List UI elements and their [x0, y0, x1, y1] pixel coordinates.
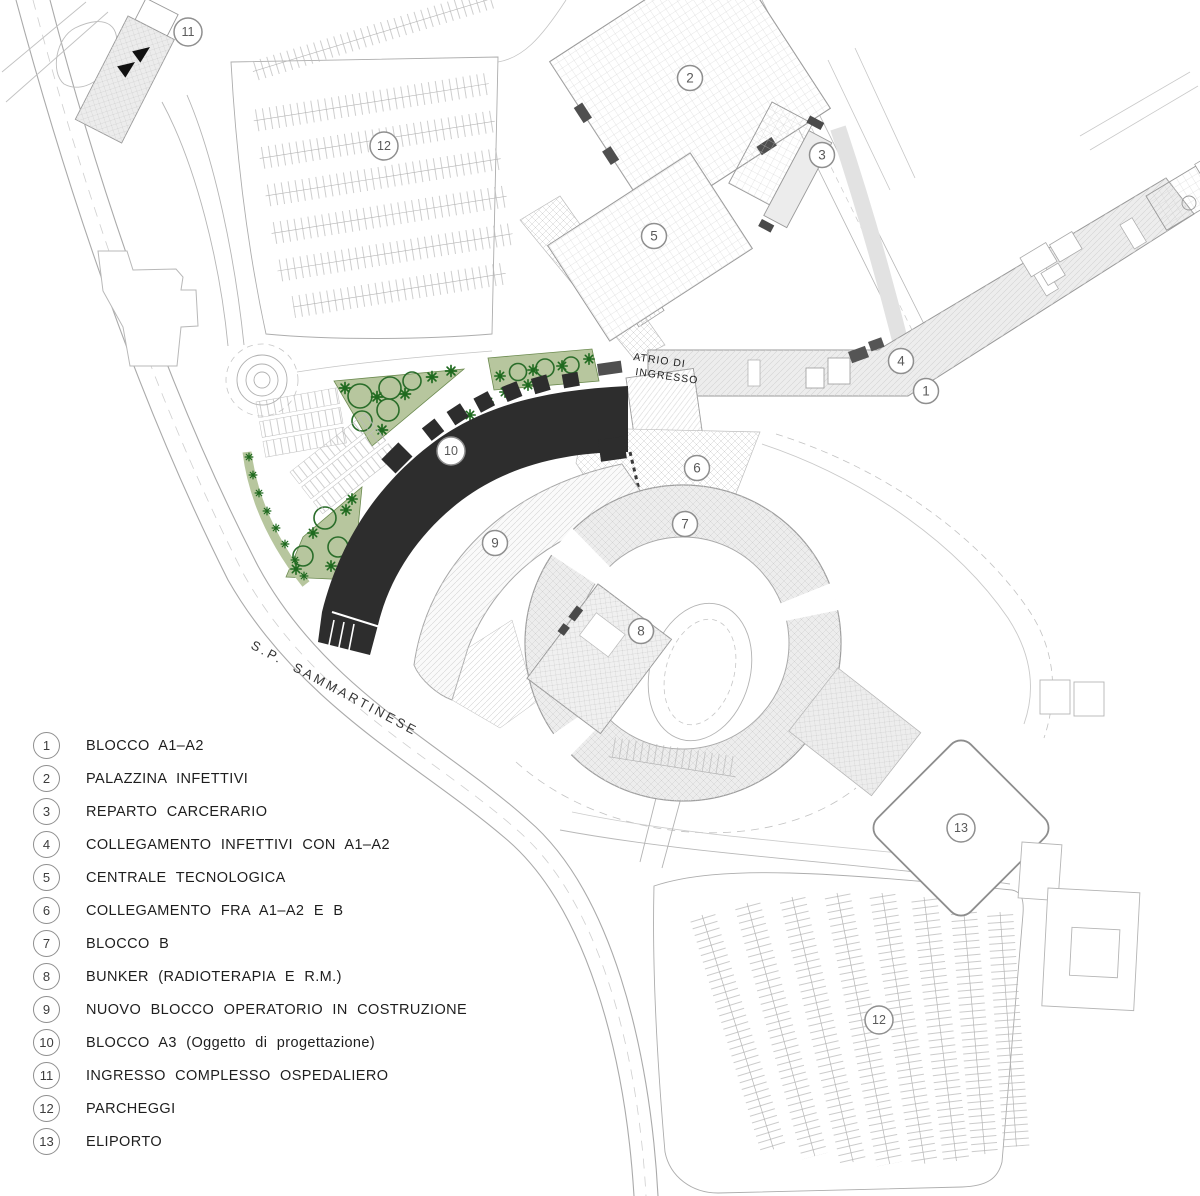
legend-item-12: 12PARCHEGGI — [33, 1092, 483, 1125]
svg-text:4: 4 — [897, 354, 905, 369]
map-marker-1: 1 — [914, 379, 939, 404]
legend-number: 3 — [33, 798, 60, 825]
legend-item-7: 7BLOCCO B — [33, 927, 483, 960]
map-marker-11: 11 — [174, 18, 202, 46]
legend-label: COLLEGAMENTO FRA A1–A2 E B — [86, 903, 343, 919]
legend-label: BLOCCO A3 (Oggetto di progettazione) — [86, 1035, 375, 1051]
map-marker-12: 12 — [370, 132, 398, 160]
svg-text:2: 2 — [686, 71, 694, 86]
map-marker-12: 12 — [865, 1006, 893, 1034]
svg-text:5: 5 — [650, 229, 658, 244]
legend-item-9: 9NUOVO BLOCCO OPERATORIO IN COSTRUZIONE — [33, 993, 483, 1026]
legend-number: 7 — [33, 930, 60, 957]
map-marker-2: 2 — [678, 66, 703, 91]
legend-label: BLOCCO A1–A2 — [86, 738, 204, 754]
map-marker-8: 8 — [629, 619, 654, 644]
legend-label: COLLEGAMENTO INFETTIVI CON A1–A2 — [86, 837, 390, 853]
legend-label: PARCHEGGI — [86, 1101, 176, 1117]
map-marker-5: 5 — [642, 224, 667, 249]
legend: 1BLOCCO A1–A22PALAZZINA INFETTIVI3REPART… — [33, 729, 483, 1158]
legend-item-5: 5CENTRALE TECNOLOGICA — [33, 861, 483, 894]
entrance-ramp — [75, 0, 185, 143]
legend-item-3: 3REPARTO CARCERARIO — [33, 795, 483, 828]
legend-label: CENTRALE TECNOLOGICA — [86, 870, 286, 886]
legend-number: 9 — [33, 996, 60, 1023]
svg-text:1: 1 — [922, 384, 930, 399]
legend-number: 8 — [33, 963, 60, 990]
svg-text:12: 12 — [377, 139, 391, 153]
map-marker-6: 6 — [685, 456, 710, 481]
svg-text:12: 12 — [872, 1013, 886, 1027]
svg-text:7: 7 — [681, 517, 689, 532]
svg-text:13: 13 — [954, 821, 968, 835]
map-marker-3: 3 — [810, 143, 835, 168]
map-marker-9: 9 — [483, 531, 508, 556]
legend-item-11: 11INGRESSO COMPLESSO OSPEDALIERO — [33, 1059, 483, 1092]
map-marker-4: 4 — [889, 349, 914, 374]
legend-number: 6 — [33, 897, 60, 924]
legend-number: 5 — [33, 864, 60, 891]
map-marker-7: 7 — [673, 512, 698, 537]
building-left-outline — [98, 251, 198, 366]
svg-text:3: 3 — [818, 148, 826, 163]
legend-number: 12 — [33, 1095, 60, 1122]
legend-item-13: 13ELIPORTO — [33, 1125, 483, 1158]
legend-label: INGRESSO COMPLESSO OSPEDALIERO — [86, 1068, 388, 1084]
svg-text:8: 8 — [637, 624, 645, 639]
buildings-right — [1018, 680, 1140, 1011]
legend-label: ELIPORTO — [86, 1134, 162, 1150]
legend-number: 10 — [33, 1029, 60, 1056]
parking-north — [231, 0, 520, 339]
legend-item-1: 1BLOCCO A1–A2 — [33, 729, 483, 762]
svg-text:9: 9 — [491, 536, 499, 551]
parking-south — [654, 873, 1030, 1193]
legend-label: BUNKER (RADIOTERAPIA E R.M.) — [86, 969, 342, 985]
svg-text:10: 10 — [444, 444, 458, 458]
legend-label: PALAZZINA INFETTIVI — [86, 771, 248, 787]
legend-item-2: 2PALAZZINA INFETTIVI — [33, 762, 483, 795]
site-plan-page: ATRIO DI INGRESSO S.P. SAMMARTINESE 1234… — [0, 0, 1200, 1196]
legend-number: 4 — [33, 831, 60, 858]
legend-label: NUOVO BLOCCO OPERATORIO IN COSTRUZIONE — [86, 1002, 467, 1018]
legend-item-8: 8BUNKER (RADIOTERAPIA E R.M.) — [33, 960, 483, 993]
building-blocco-a1-a2 — [648, 159, 1200, 396]
legend-label: REPARTO CARCERARIO — [86, 804, 267, 820]
legend-number: 1 — [33, 732, 60, 759]
legend-item-6: 6COLLEGAMENTO FRA A1–A2 E B — [33, 894, 483, 927]
legend-number: 11 — [33, 1062, 60, 1089]
legend-number: 2 — [33, 765, 60, 792]
svg-text:6: 6 — [693, 461, 701, 476]
svg-text:11: 11 — [182, 25, 195, 39]
road-label: S.P. SAMMARTINESE — [249, 637, 421, 738]
legend-number: 13 — [33, 1128, 60, 1155]
map-marker-13: 13 — [947, 814, 975, 842]
legend-label: BLOCCO B — [86, 936, 169, 952]
map-marker-10: 10 — [437, 437, 465, 465]
legend-item-10: 10BLOCCO A3 (Oggetto di progettazione) — [33, 1026, 483, 1059]
legend-item-4: 4COLLEGAMENTO INFETTIVI CON A1–A2 — [33, 828, 483, 861]
